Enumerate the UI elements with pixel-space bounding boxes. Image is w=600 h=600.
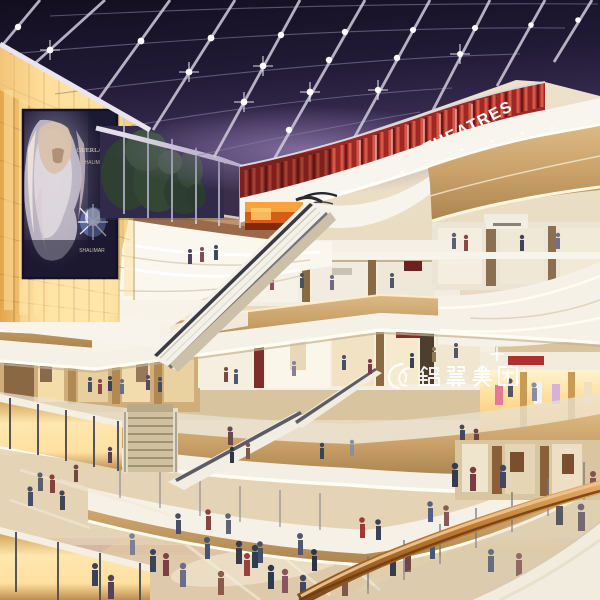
svg-text:SHALIMAR: SHALIMAR: [79, 248, 105, 254]
